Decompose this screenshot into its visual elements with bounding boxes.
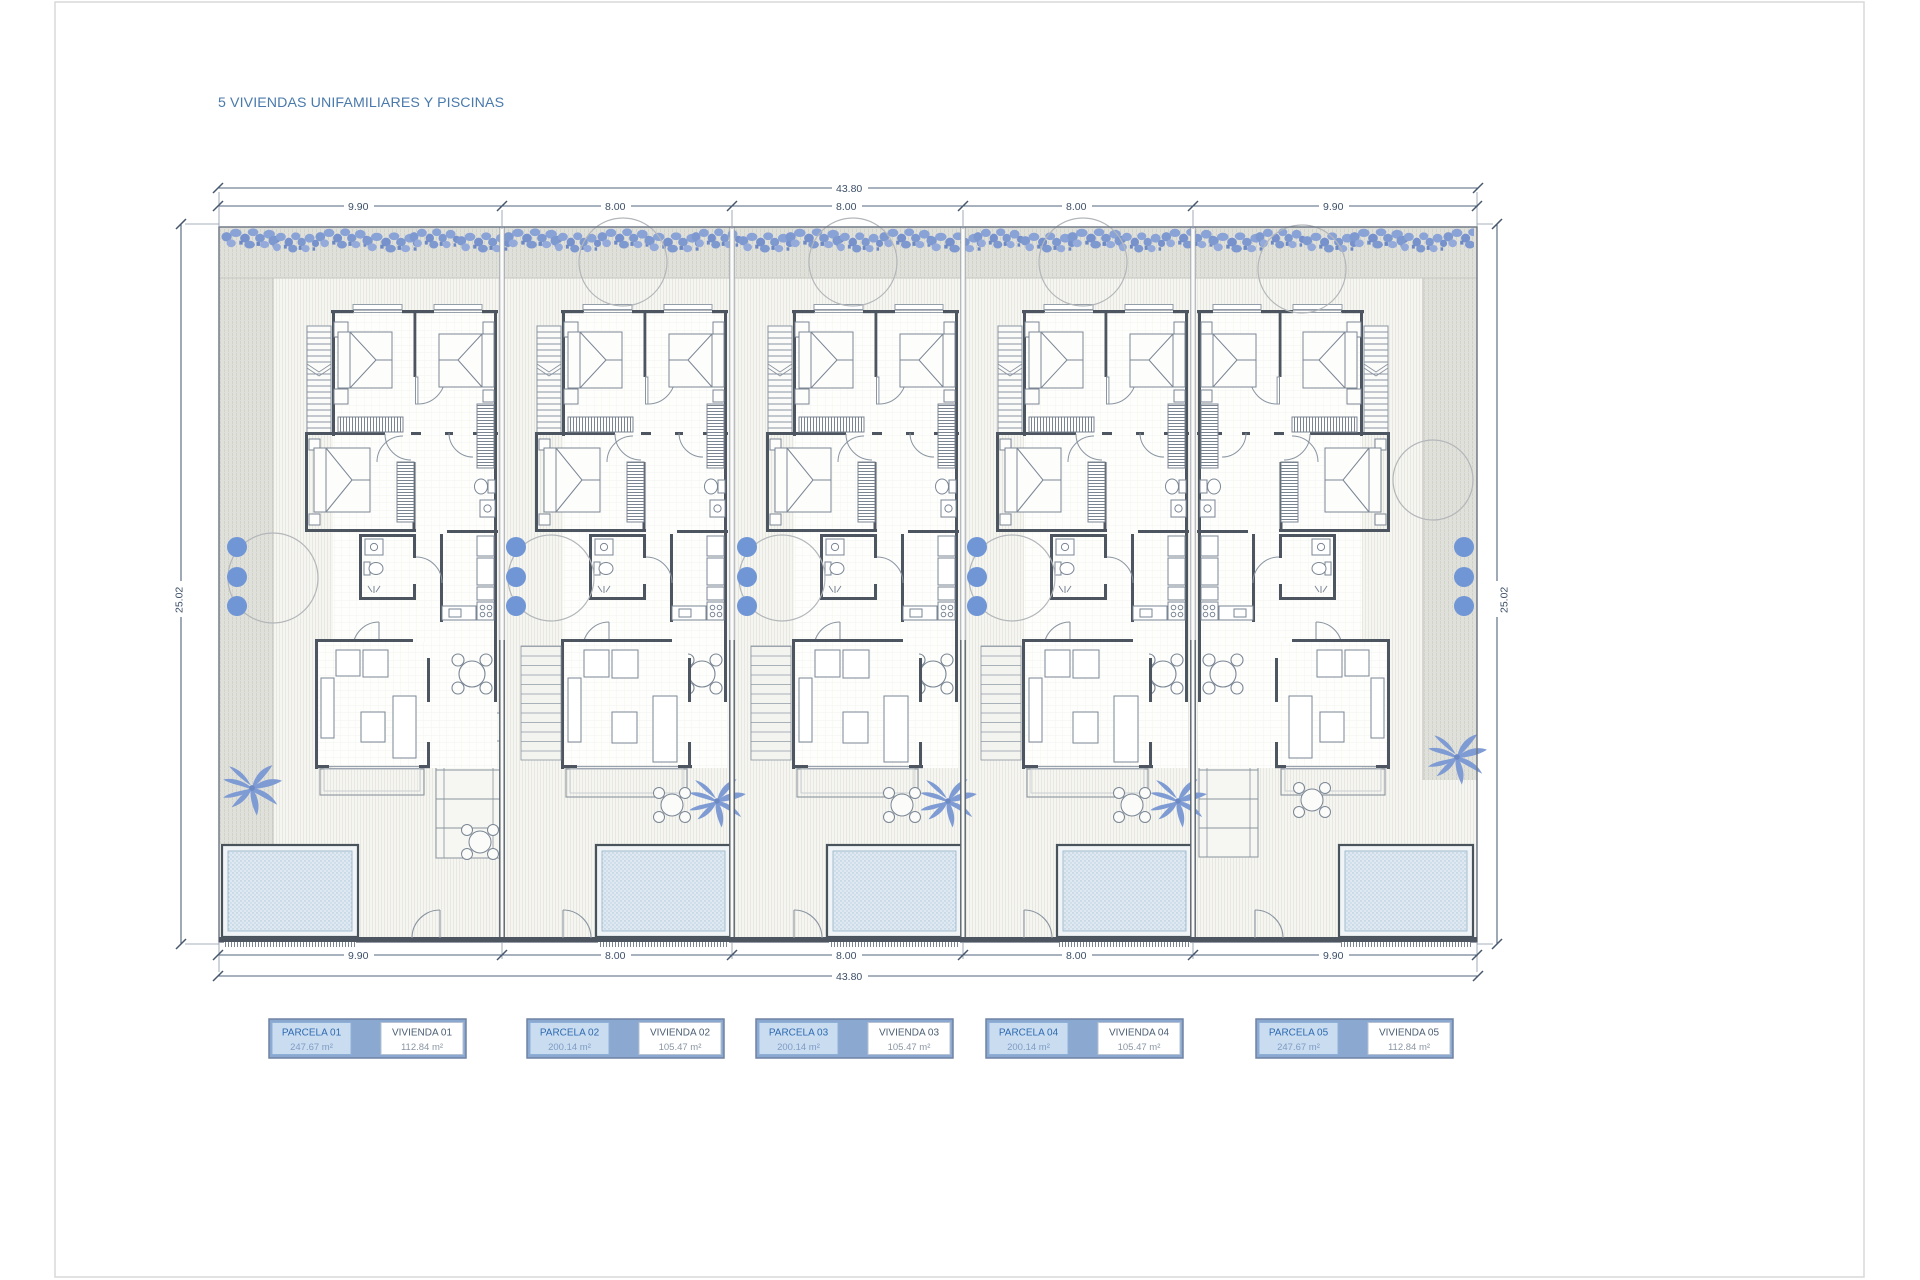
svg-text:8.00: 8.00 — [605, 201, 626, 213]
svg-text:25.02: 25.02 — [174, 587, 186, 613]
svg-text:200.14 m²: 200.14 m² — [777, 1042, 820, 1053]
svg-text:25.02: 25.02 — [1499, 587, 1511, 613]
svg-text:PARCELA 05: PARCELA 05 — [1269, 1028, 1329, 1039]
svg-text:8.00: 8.00 — [605, 950, 626, 962]
svg-text:112.84 m²: 112.84 m² — [401, 1042, 443, 1053]
svg-text:200.14 m²: 200.14 m² — [1007, 1042, 1050, 1053]
svg-text:VIVIENDA 04: VIVIENDA 04 — [1109, 1028, 1169, 1039]
svg-text:8.00: 8.00 — [836, 201, 857, 213]
svg-text:43.80: 43.80 — [836, 971, 862, 983]
svg-text:8.00: 8.00 — [836, 950, 857, 962]
svg-text:VIVIENDA 05: VIVIENDA 05 — [1379, 1028, 1439, 1039]
svg-text:9.90: 9.90 — [348, 950, 369, 962]
svg-text:43.80: 43.80 — [836, 183, 862, 195]
svg-text:PARCELA 02: PARCELA 02 — [540, 1028, 600, 1039]
svg-text:105.47 m²: 105.47 m² — [659, 1042, 702, 1053]
svg-text:112.84 m²: 112.84 m² — [1388, 1042, 1430, 1053]
svg-text:200.14 m²: 200.14 m² — [548, 1042, 591, 1053]
svg-text:105.47 m²: 105.47 m² — [1118, 1042, 1161, 1053]
svg-text:9.90: 9.90 — [1323, 950, 1344, 962]
svg-text:PARCELA 01: PARCELA 01 — [282, 1028, 342, 1039]
svg-text:247.67 m²: 247.67 m² — [1277, 1042, 1320, 1053]
svg-text:PARCELA 04: PARCELA 04 — [999, 1028, 1059, 1039]
svg-text:PARCELA 03: PARCELA 03 — [769, 1028, 829, 1039]
svg-text:VIVIENDA 03: VIVIENDA 03 — [879, 1028, 939, 1039]
svg-text:9.90: 9.90 — [1323, 201, 1344, 213]
svg-text:8.00: 8.00 — [1066, 950, 1087, 962]
svg-text:5 VIVIENDAS UNIFAMILIARES Y PI: 5 VIVIENDAS UNIFAMILIARES Y PISCINAS — [218, 95, 504, 111]
svg-text:105.47 m²: 105.47 m² — [888, 1042, 931, 1053]
svg-text:247.67 m²: 247.67 m² — [290, 1042, 333, 1053]
svg-text:VIVIENDA 02: VIVIENDA 02 — [650, 1028, 710, 1039]
svg-text:9.90: 9.90 — [348, 201, 369, 213]
svg-text:8.00: 8.00 — [1066, 201, 1087, 213]
svg-text:VIVIENDA 01: VIVIENDA 01 — [392, 1028, 452, 1039]
